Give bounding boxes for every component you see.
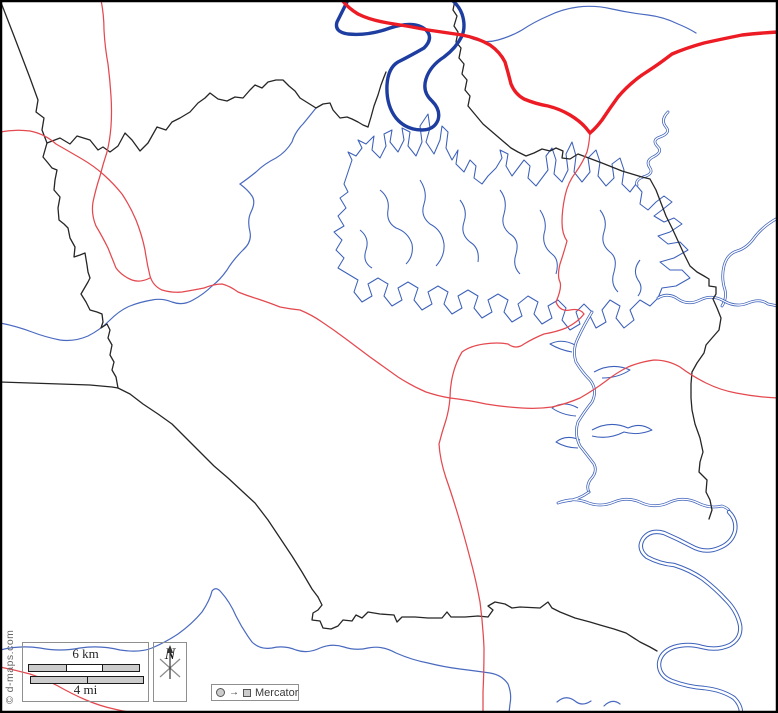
county-boundary (0, 0, 721, 651)
scale-km-label: 6 km (23, 646, 148, 662)
circle-icon (216, 688, 225, 697)
major-river (336, 0, 464, 130)
scale-segment (103, 665, 139, 671)
map-drawing (0, 0, 778, 713)
projection-label: Mercator (255, 687, 298, 699)
square-icon (243, 689, 251, 697)
scale-km-bar (28, 664, 140, 672)
scale-mi-label: 4 mi (23, 682, 148, 698)
attribution: © d-maps.com (4, 630, 16, 704)
map-canvas: 6 km 4 mi N → Mercator © d-maps.com (0, 0, 778, 713)
projection-badge: → Mercator (211, 684, 299, 701)
scale-segment (67, 665, 104, 671)
arrow-right-icon: → (229, 688, 239, 698)
compass-rose-icon (154, 643, 186, 681)
north-indicator: N (153, 642, 187, 702)
scale-segment (29, 665, 67, 671)
scale-bar: 6 km 4 mi (22, 642, 149, 702)
lake-shoreline (334, 114, 690, 448)
major-road (342, 0, 778, 133)
streams (0, 6, 696, 713)
